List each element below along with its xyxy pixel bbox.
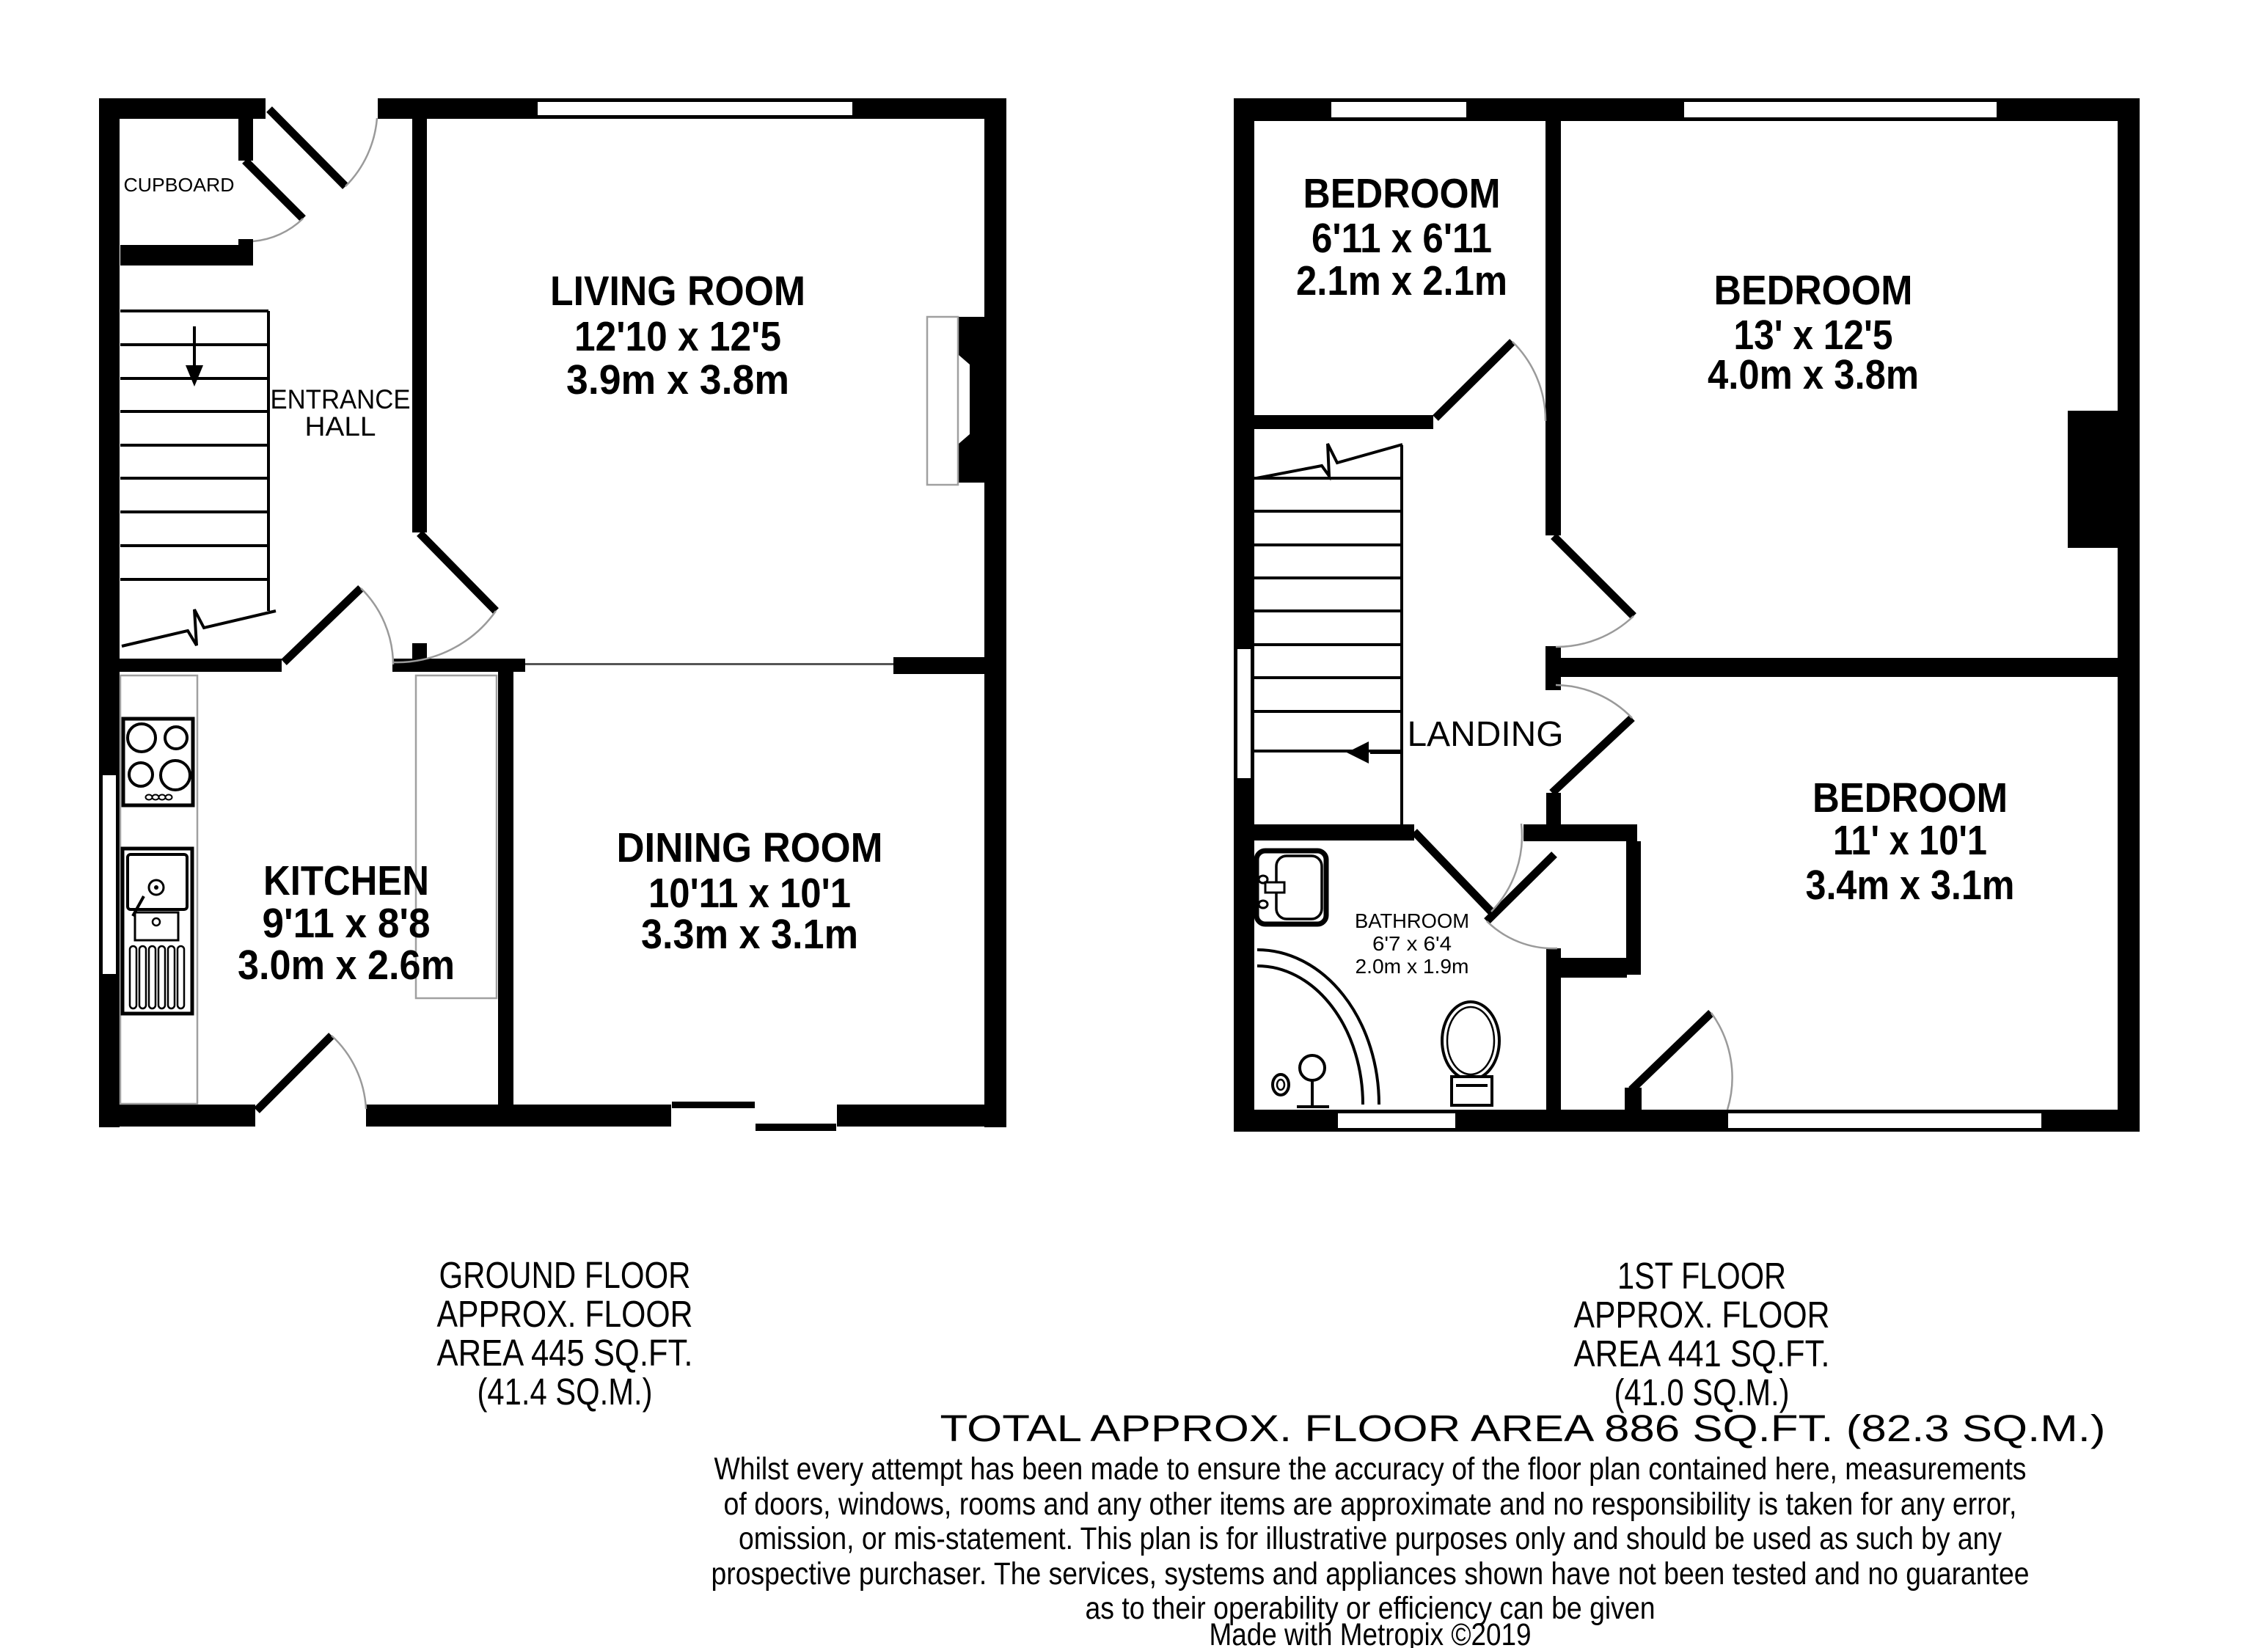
svg-text:3.9m x 3.8m: 3.9m x 3.8m bbox=[566, 356, 789, 403]
svg-text:2.0m x 1.9m: 2.0m x 1.9m bbox=[1356, 955, 1469, 978]
svg-text:6'7 x 6'4: 6'7 x 6'4 bbox=[1372, 932, 1452, 955]
svg-text:6'11 x 6'11: 6'11 x 6'11 bbox=[1312, 215, 1492, 262]
svg-text:Made with Metropix ©2019: Made with Metropix ©2019 bbox=[1210, 1617, 1532, 1648]
svg-text:HALL: HALL bbox=[305, 411, 376, 442]
svg-text:3.3m x 3.1m: 3.3m x 3.1m bbox=[641, 911, 858, 958]
svg-text:APPROX. FLOOR: APPROX. FLOOR bbox=[1574, 1294, 1830, 1336]
svg-text:BEDROOM: BEDROOM bbox=[1303, 170, 1501, 217]
svg-text:11' x 10'1: 11' x 10'1 bbox=[1833, 817, 1987, 864]
svg-text:LIVING ROOM: LIVING ROOM bbox=[550, 268, 805, 315]
svg-text:of doors, windows, rooms and a: of doors, windows, rooms and any other i… bbox=[724, 1487, 2017, 1522]
svg-text:Whilst every attempt has been: Whilst every attempt has been made to en… bbox=[714, 1451, 2027, 1487]
svg-text:AREA 445 SQ.FT.: AREA 445 SQ.FT. bbox=[437, 1332, 693, 1374]
svg-text:AREA 441 SQ.FT.: AREA 441 SQ.FT. bbox=[1574, 1333, 1830, 1374]
svg-text:4.0m x 3.8m: 4.0m x 3.8m bbox=[1708, 351, 1919, 398]
svg-text:BEDROOM: BEDROOM bbox=[1714, 267, 1913, 314]
svg-text:BATHROOM: BATHROOM bbox=[1355, 909, 1469, 932]
svg-text:APPROX. FLOOR: APPROX. FLOOR bbox=[437, 1293, 693, 1335]
svg-text:3.0m x 2.6m: 3.0m x 2.6m bbox=[238, 942, 455, 989]
svg-text:GROUND FLOOR: GROUND FLOOR bbox=[439, 1254, 691, 1296]
svg-text:2.1m x 2.1m: 2.1m x 2.1m bbox=[1296, 257, 1507, 304]
svg-text:BEDROOM: BEDROOM bbox=[1812, 774, 2008, 821]
svg-text:1ST FLOOR: 1ST FLOOR bbox=[1617, 1255, 1786, 1297]
svg-text:ENTRANCE: ENTRANCE bbox=[271, 384, 411, 414]
svg-text:(41.4 SQ.M.): (41.4 SQ.M.) bbox=[478, 1371, 653, 1413]
svg-text:omission, or mis-statement. Th: omission, or mis-statement. This plan is… bbox=[739, 1521, 2002, 1556]
svg-text:12'10 x 12'5: 12'10 x 12'5 bbox=[574, 313, 781, 360]
svg-text:KITCHEN: KITCHEN bbox=[263, 857, 429, 904]
svg-text:3.4m x 3.1m: 3.4m x 3.1m bbox=[1806, 862, 2015, 909]
svg-text:TOTAL APPROX. FLOOR AREA 886 S: TOTAL APPROX. FLOOR AREA 886 SQ.FT. (82.… bbox=[940, 1407, 2106, 1449]
svg-text:CUPBOARD: CUPBOARD bbox=[124, 174, 235, 196]
svg-text:9'11 x 8'8: 9'11 x 8'8 bbox=[263, 900, 431, 947]
svg-text:prospective purchaser. The ser: prospective purchaser. The services, sys… bbox=[712, 1556, 2030, 1592]
svg-text:10'11 x 10'1: 10'11 x 10'1 bbox=[648, 870, 851, 917]
svg-text:LANDING: LANDING bbox=[1408, 715, 1564, 754]
svg-text:DINING ROOM: DINING ROOM bbox=[617, 824, 883, 871]
